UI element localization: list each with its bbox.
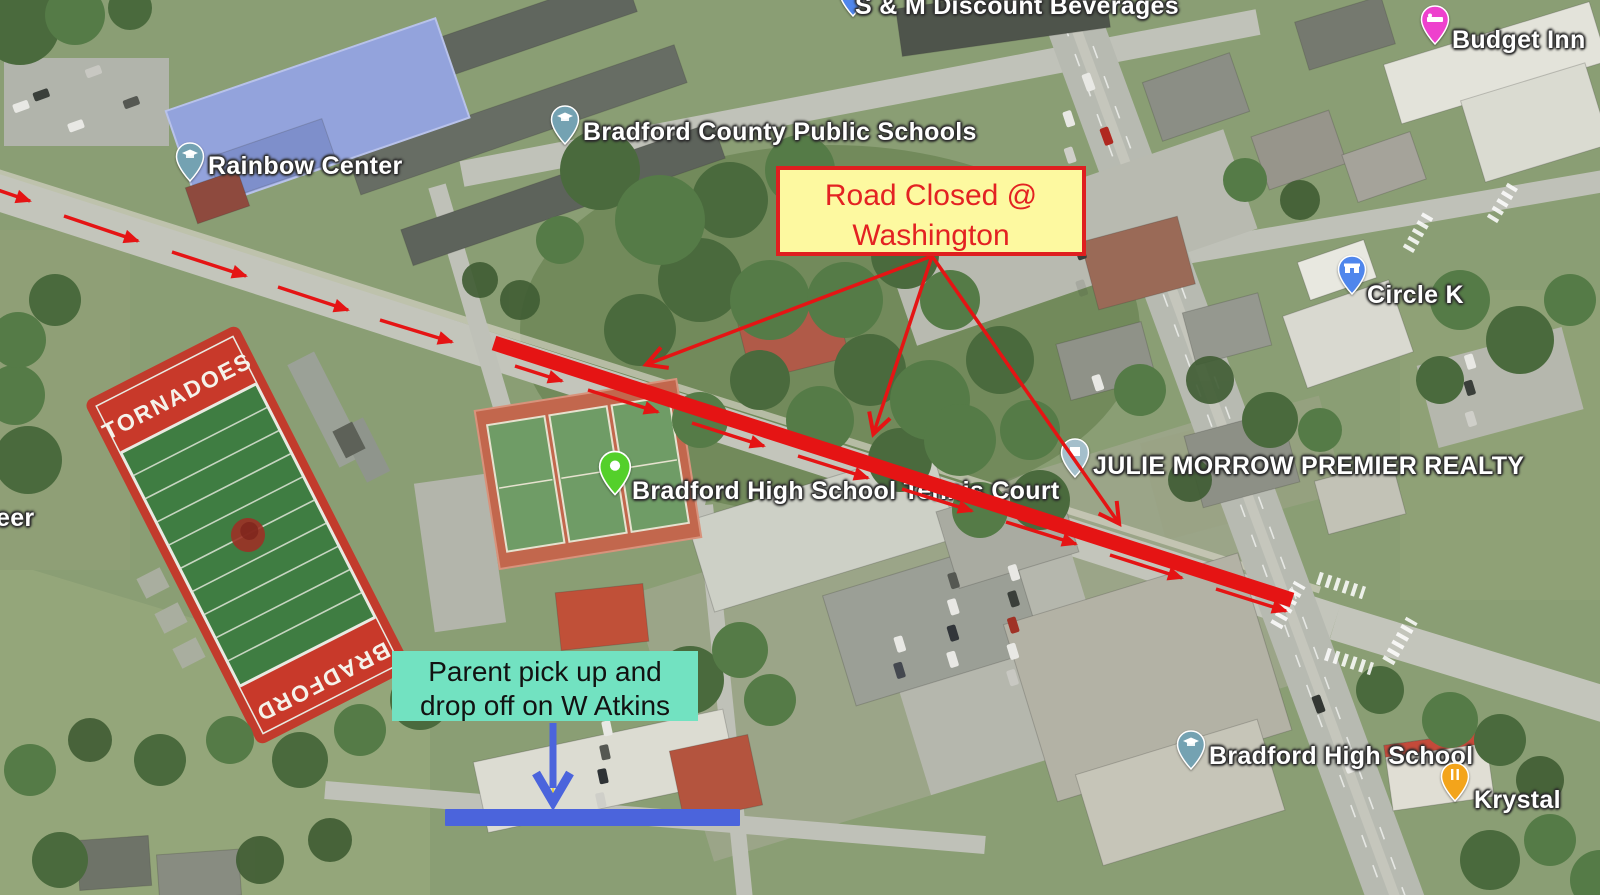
- hotel-pin-icon: [1420, 5, 1450, 45]
- store-pin-icon: [1337, 255, 1367, 295]
- label-text: Budget Inn: [1452, 26, 1586, 55]
- school-pin-icon: [1176, 730, 1206, 770]
- label-text: Bradford High School: [1209, 742, 1473, 771]
- pickup-line2: drop off on W Atkins: [392, 689, 698, 723]
- road-closed-line2: Washington: [780, 216, 1082, 256]
- label-text: S & M Discount Beverages: [855, 0, 1179, 21]
- school-pin-icon: [175, 142, 205, 182]
- road-closed-callout: Road Closed @ Washington: [776, 166, 1086, 256]
- realty-pin-icon: [1060, 438, 1090, 478]
- label-text: Rainbow Center: [208, 152, 403, 181]
- tennis-pin-icon: [598, 450, 632, 496]
- parent-pickup-callout: Parent pick up and drop off on W Atkins: [392, 651, 698, 721]
- road-closed-line1: Road Closed @: [780, 176, 1082, 216]
- label-text: reer: [0, 504, 34, 533]
- label-text: Bradford County Public Schools: [583, 118, 977, 147]
- label-text: JULIE MORROW PREMIER REALTY: [1093, 452, 1524, 481]
- label-text: Krystal: [1474, 786, 1561, 815]
- restaurant-pin-icon: [1440, 762, 1470, 802]
- label-text: Circle K: [1367, 281, 1464, 310]
- tennis-courts: [475, 379, 702, 569]
- satellite-map[interactable]: TORNADOES BRADFORD: [0, 0, 1600, 895]
- pickup-line1: Parent pick up and: [392, 655, 698, 689]
- label-text: Bradford High School Tennis Court: [632, 477, 1059, 506]
- school-pin-icon: [550, 105, 580, 145]
